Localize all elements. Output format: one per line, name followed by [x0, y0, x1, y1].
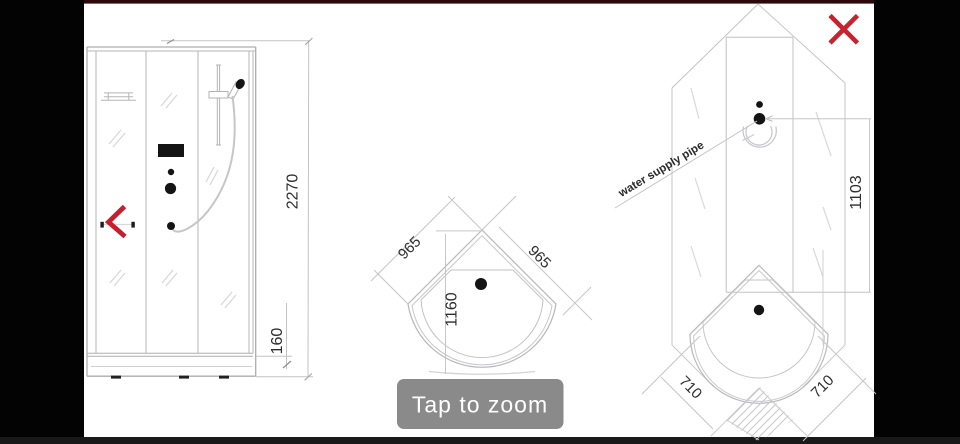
svg-text:1160: 1160: [444, 292, 461, 327]
svg-text:1103: 1103: [848, 175, 865, 210]
svg-text:2270: 2270: [285, 174, 302, 210]
svg-text:Tap to zoom: Tap to zoom: [412, 392, 548, 418]
svg-text:160: 160: [269, 328, 286, 355]
